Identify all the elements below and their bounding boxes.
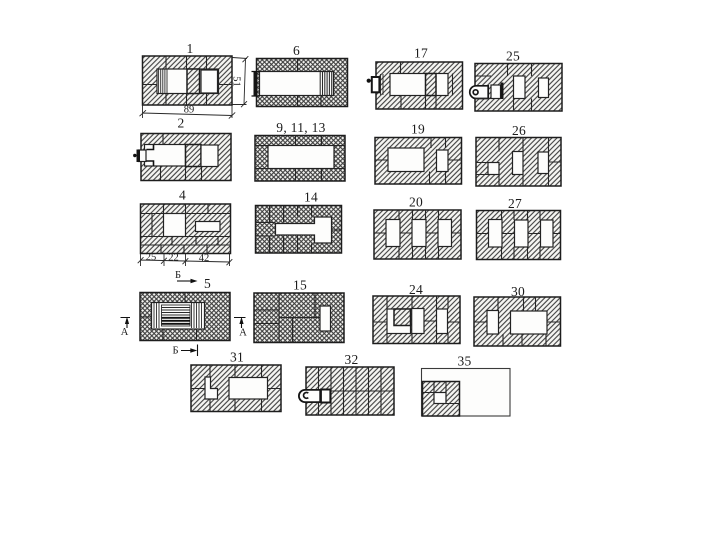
svg-text:14: 14 <box>304 190 318 205</box>
svg-text:32: 32 <box>344 352 358 367</box>
svg-text:4: 4 <box>179 188 186 203</box>
svg-text:25: 25 <box>146 252 157 263</box>
svg-text:24: 24 <box>409 282 423 297</box>
svg-text:Б: Б <box>175 270 181 281</box>
svg-text:А: А <box>121 327 129 338</box>
svg-text:51: 51 <box>231 76 242 87</box>
svg-text:2: 2 <box>177 116 184 131</box>
svg-text:15: 15 <box>293 278 307 293</box>
svg-text:19: 19 <box>411 122 425 137</box>
svg-text:17: 17 <box>414 46 428 61</box>
svg-text:А: А <box>239 328 247 339</box>
svg-text:26: 26 <box>512 123 526 138</box>
svg-text:22: 22 <box>168 252 179 263</box>
svg-text:42: 42 <box>199 253 210 264</box>
svg-text:5: 5 <box>204 276 211 291</box>
svg-text:31: 31 <box>230 350 244 365</box>
svg-text:35: 35 <box>457 354 471 369</box>
svg-text:89: 89 <box>184 105 195 116</box>
svg-text:1: 1 <box>186 41 193 56</box>
svg-text:27: 27 <box>508 196 522 211</box>
svg-text:Б: Б <box>172 346 178 357</box>
svg-text:25: 25 <box>506 49 520 64</box>
svg-text:6: 6 <box>293 43 300 58</box>
svg-text:9, 11, 13: 9, 11, 13 <box>276 120 325 135</box>
svg-text:20: 20 <box>409 195 423 210</box>
